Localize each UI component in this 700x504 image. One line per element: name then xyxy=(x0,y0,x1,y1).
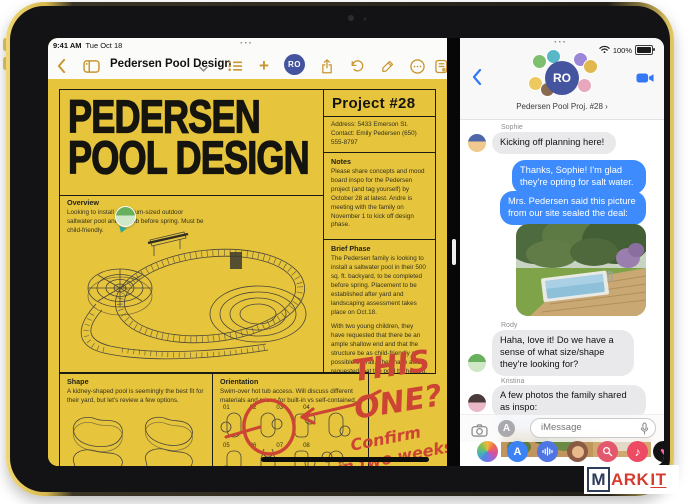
home-indicator[interactable] xyxy=(261,457,429,462)
orientation-box: Orientation Swim-over hot tub access. Wi… xyxy=(213,372,369,466)
avatar-sophie xyxy=(468,134,486,152)
watermark-ark: ARK xyxy=(611,470,649,490)
front-camera xyxy=(348,15,354,21)
member-avatar xyxy=(583,59,598,74)
music-app-icon[interactable]: ♪ xyxy=(627,441,648,462)
status-bar-left: 9:41 AMTue Oct 18 xyxy=(53,41,122,50)
battery-icon xyxy=(635,45,653,55)
sender-label: Rody xyxy=(501,322,517,329)
messages-header: ··· 100% xyxy=(460,38,664,120)
orientation-row1-sketch xyxy=(219,411,364,439)
project-address: Address: 5433 Emerson St. xyxy=(331,121,428,130)
camera-icon[interactable] xyxy=(470,421,488,439)
project-notes-heading: Notes xyxy=(331,157,428,166)
brief-p1: The Pedersen family is looking to instal… xyxy=(331,255,428,318)
multitask-dots-left[interactable]: ··· xyxy=(240,38,253,49)
split-view-divider xyxy=(447,38,460,466)
brief-heading: Brief Phase xyxy=(331,244,428,253)
ipad-bezel: 9:41 AMTue Oct 18 ··· Pedersen Pool Desi… xyxy=(10,6,670,492)
audio-app-icon[interactable] xyxy=(537,441,558,462)
compose-note-icon[interactable] xyxy=(432,57,447,75)
notes-topbar: 9:41 AMTue Oct 18 ··· Pedersen Pool Desi… xyxy=(48,38,447,79)
back-chevron-icon[interactable] xyxy=(52,57,70,75)
composer-bar: A xyxy=(460,414,664,442)
avatar-rody xyxy=(468,354,486,372)
appstore-drawer-icon[interactable]: A xyxy=(498,420,515,437)
message-input-pill xyxy=(530,418,656,438)
message-bubble[interactable]: Haha, love it! Do we have a sense of wha… xyxy=(492,330,634,376)
undo-icon[interactable] xyxy=(348,57,366,75)
dictation-mic-icon[interactable] xyxy=(640,422,649,440)
appstore-app-icon[interactable]: A xyxy=(507,441,528,462)
project-heading: Project #28 xyxy=(324,90,435,117)
screenshot-stage: 9:41 AMTue Oct 18 ··· Pedersen Pool Desi… xyxy=(0,0,700,504)
sidebar-icon[interactable] xyxy=(82,57,100,75)
pool-wireframe-sketch xyxy=(62,222,322,372)
project-notes-body: Please share concepts and mood board ins… xyxy=(331,168,428,231)
status-date: Tue Oct 18 xyxy=(85,41,122,50)
sender-label: Kristina xyxy=(501,378,524,385)
facetime-video-icon[interactable] xyxy=(636,69,654,87)
wifi-icon xyxy=(599,41,610,59)
project-box: Project #28 Address: 5433 Emerson St. Co… xyxy=(324,89,436,374)
orientation-heading: Orientation xyxy=(220,377,361,386)
poster-title-box: PEDERSEN POOL DESIGN xyxy=(59,89,324,196)
sender-label: Sophie xyxy=(501,124,523,131)
add-icon[interactable]: + xyxy=(255,57,273,75)
overview-heading: Overview xyxy=(67,198,316,207)
multitask-dots-right[interactable]: ··· xyxy=(554,38,567,48)
memoji-stickers-icon[interactable] xyxy=(567,441,588,462)
battery-percent: 100% xyxy=(613,46,632,55)
screen: 9:41 AMTue Oct 18 ··· Pedersen Pool Desi… xyxy=(48,38,664,466)
chevron-down-icon[interactable] xyxy=(194,60,212,78)
shape-body: A kidney-shaped pool is seemingly the be… xyxy=(67,388,205,406)
status-bar-right: 100% xyxy=(599,41,653,59)
messages-back-icon[interactable] xyxy=(468,68,486,86)
message-bubble-sent[interactable]: Mrs. Pedersen said this picture from our… xyxy=(500,191,646,225)
shape-box: Shape A kidney-shaped pool is seemingly … xyxy=(59,372,213,466)
more-ellipsis-icon[interactable] xyxy=(408,57,426,75)
group-logo-avatar: RO xyxy=(545,61,579,95)
collaboration-avatar[interactable]: RO xyxy=(284,54,305,75)
watermark-m: M xyxy=(587,467,610,492)
status-time: 9:41 AM xyxy=(53,41,81,50)
message-bubble[interactable]: Kicking off planning here! xyxy=(492,132,616,154)
watermark: M ARK IT xyxy=(584,465,679,494)
message-bubble-sent[interactable]: Thanks, Sophie! I'm glad they're opting … xyxy=(512,160,646,194)
conversation-title[interactable]: Pedersen Pool Proj. #28 › xyxy=(460,102,664,111)
share-icon[interactable] xyxy=(318,57,336,75)
watermark-it: IT xyxy=(650,470,666,490)
overview-box: Overview Looking to install a medium-siz… xyxy=(59,194,324,374)
poster-title-line2: POOL DESIGN xyxy=(68,138,277,180)
images-search-icon[interactable] xyxy=(597,441,618,462)
poster-document[interactable]: PEDERSEN POOL DESIGN Project #28 Address… xyxy=(48,79,447,466)
photos-app-icon[interactable] xyxy=(477,441,498,462)
pool-photo-message[interactable] xyxy=(516,224,646,316)
imessage-input[interactable] xyxy=(539,421,638,434)
markup-pen-icon[interactable] xyxy=(378,57,396,75)
project-contact: Contact: Emily Pedersen (650) 555-8797 xyxy=(331,130,428,148)
avatar-kristina xyxy=(468,394,486,412)
messages-app: ··· 100% xyxy=(460,38,664,466)
note-title[interactable]: Pedersen Pool Design xyxy=(110,58,231,70)
ipad-device: 9:41 AMTue Oct 18 ··· Pedersen Pool Desi… xyxy=(6,2,674,496)
member-avatar xyxy=(532,54,547,69)
collaborator-cursor-avatar xyxy=(115,206,136,227)
checklist-icon[interactable] xyxy=(226,57,244,75)
split-drag-handle[interactable] xyxy=(452,239,456,265)
member-avatar xyxy=(577,78,592,93)
shape-heading: Shape xyxy=(67,377,205,386)
digital-touch-icon[interactable]: ♥ xyxy=(653,441,664,462)
shape-options-sketch xyxy=(66,411,208,466)
orientation-body: Swim-over hot tub access. Will discuss d… xyxy=(220,388,361,406)
notes-app: 9:41 AMTue Oct 18 ··· Pedersen Pool Desi… xyxy=(48,38,447,466)
